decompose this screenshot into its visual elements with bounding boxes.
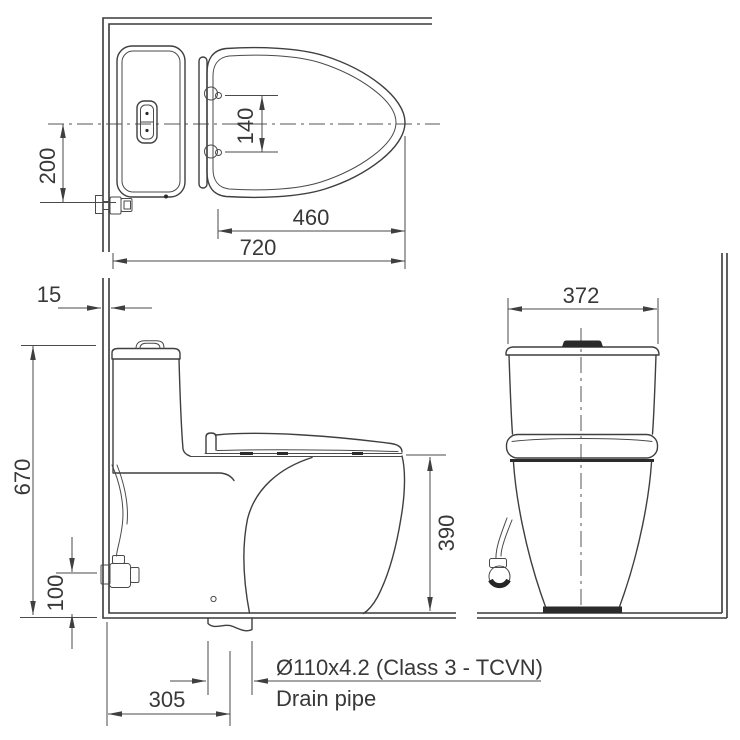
dim-720-label: 720: [240, 235, 277, 260]
top-view: 200 140 460 720: [35, 18, 440, 269]
hinge-cover: [199, 57, 207, 188]
valve-body: [110, 197, 121, 214]
drain-spec-label: Ø110x4.2 (Class 3 - TCVN): [276, 655, 543, 680]
hose-fitting-dark: [491, 580, 509, 586]
side-view: 15 670 100 390 305 Ø110x4.2 (Class 3 - T…: [10, 278, 543, 726]
bowl-left-front: [514, 463, 547, 609]
seat-lid-underline-side: [217, 450, 398, 452]
bowl-right-front: [619, 463, 652, 609]
supply-hose-front: [496, 518, 512, 559]
dim-372-label: 372: [563, 283, 600, 308]
seat-front-inner-line: [512, 439, 652, 442]
seat-lid-top-side: [216, 433, 402, 452]
bowl-fixing-hole: [211, 596, 216, 601]
bowl-right-profile: [364, 456, 405, 614]
seat-hinge-side: [206, 433, 216, 453]
tank-lid-side: [112, 349, 180, 360]
valve-knob-inner: [124, 201, 131, 209]
valve-top-nut-side: [113, 556, 125, 564]
dim-305-label: 305: [149, 687, 186, 712]
front-view: 372: [477, 253, 727, 618]
drain-pipe: [208, 618, 252, 631]
tank-button-front: [562, 341, 603, 348]
tank-body-front: [509, 355, 656, 434]
dim-200-label: 200: [35, 148, 60, 185]
bowl-front-curve: [244, 458, 312, 614]
shutoff-valve-side: [101, 556, 139, 588]
toilet-dimension-drawing: 200 140 460 720: [0, 0, 740, 740]
drain-pipe-label: Drain pipe: [276, 686, 376, 711]
shutoff-valve-plan: [96, 196, 133, 215]
wall-corner-top: [103, 18, 432, 252]
hinge-bolt-top-small: [216, 93, 222, 99]
wall-and-floor-side: [103, 278, 456, 618]
valve-body-side: [110, 564, 131, 588]
valve-wall-plate: [96, 196, 104, 214]
hose-connection-dot: [164, 195, 168, 199]
supply-hose-side: [112, 465, 127, 556]
dim-460-label: 460: [293, 205, 330, 230]
bowl-base-strip: [543, 607, 622, 614]
dim-140-label: 140: [233, 108, 258, 145]
bowl-rear-line: [113, 473, 234, 481]
dim-100-label: 100: [43, 575, 68, 612]
dim-390-label: 390: [434, 515, 459, 552]
dim-15-label: 15: [37, 282, 61, 307]
flush-button-dot-bottom: [145, 129, 148, 132]
valve-knob-side: [131, 568, 140, 583]
hinge-bolt-bottom-small: [216, 150, 222, 156]
tank-body-side: [113, 359, 190, 472]
flush-button-dot-top: [145, 112, 148, 115]
dim-670-label: 670: [10, 459, 35, 496]
tank-lid-front: [506, 347, 659, 355]
tank-button-side: [136, 341, 164, 349]
